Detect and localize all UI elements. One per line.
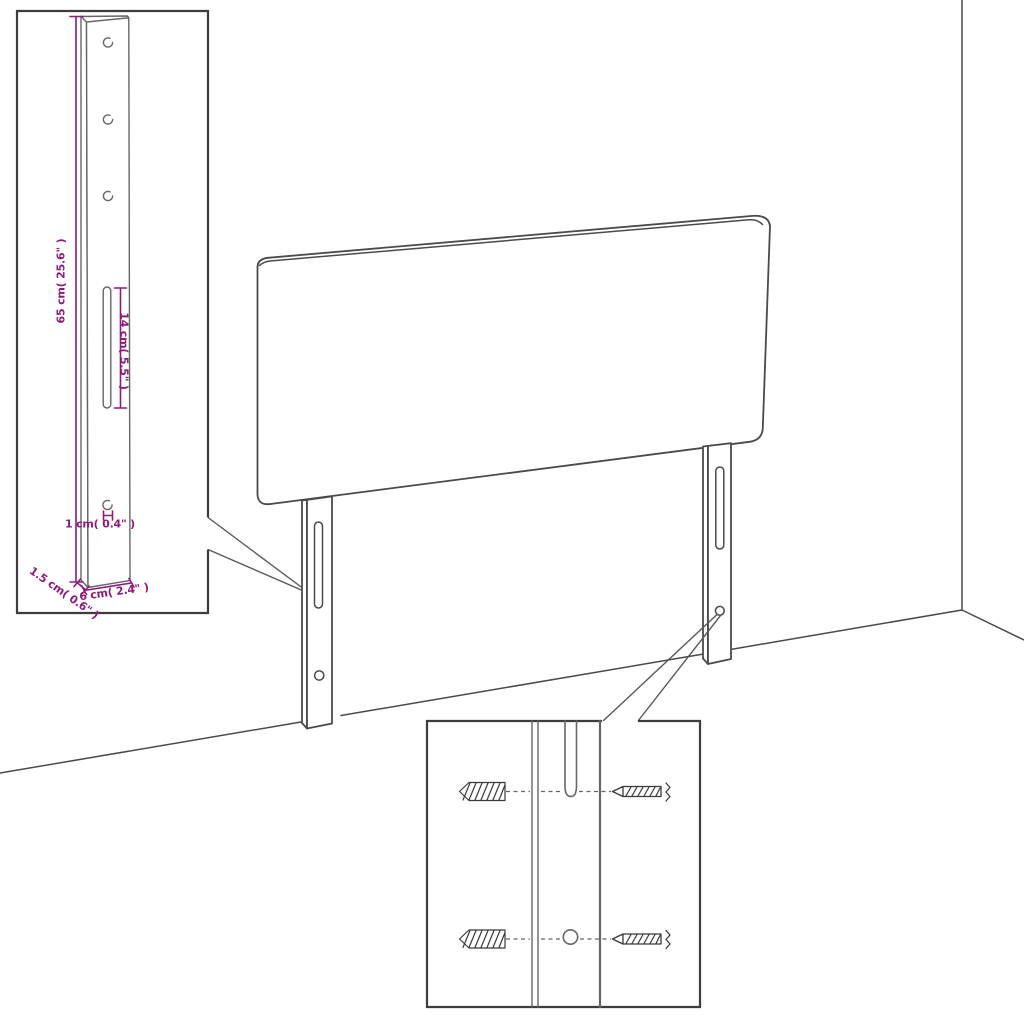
diagram-canvas bbox=[0, 0, 1024, 1024]
bracket-front-face bbox=[87, 18, 131, 588]
product-dimension-diagram: 65 cm( 25.6" ) 14 cm( 5.5" ) 1 cm( 0.4" … bbox=[0, 0, 1024, 1024]
leg-left-front-face bbox=[307, 496, 332, 728]
panel-silhouette bbox=[257, 216, 770, 504]
callout-lines-bracket-inset bbox=[208, 518, 303, 591]
leg-right-front-face bbox=[708, 443, 731, 664]
mounting-inset-background bbox=[427, 721, 700, 1007]
headboard-leg-right bbox=[703, 443, 731, 664]
headboard-panel bbox=[257, 216, 770, 504]
dimension-label-hole: 1 cm( 0.4" ) bbox=[65, 518, 135, 531]
floor-line-right bbox=[962, 610, 1024, 640]
mounting-detail-inset bbox=[427, 721, 700, 1007]
dimension-label-height: 65 cm( 25.6" ) bbox=[55, 239, 68, 324]
dimension-label-slot: 14 cm( 5.5" ) bbox=[118, 312, 131, 389]
headboard-leg-left bbox=[302, 496, 332, 728]
